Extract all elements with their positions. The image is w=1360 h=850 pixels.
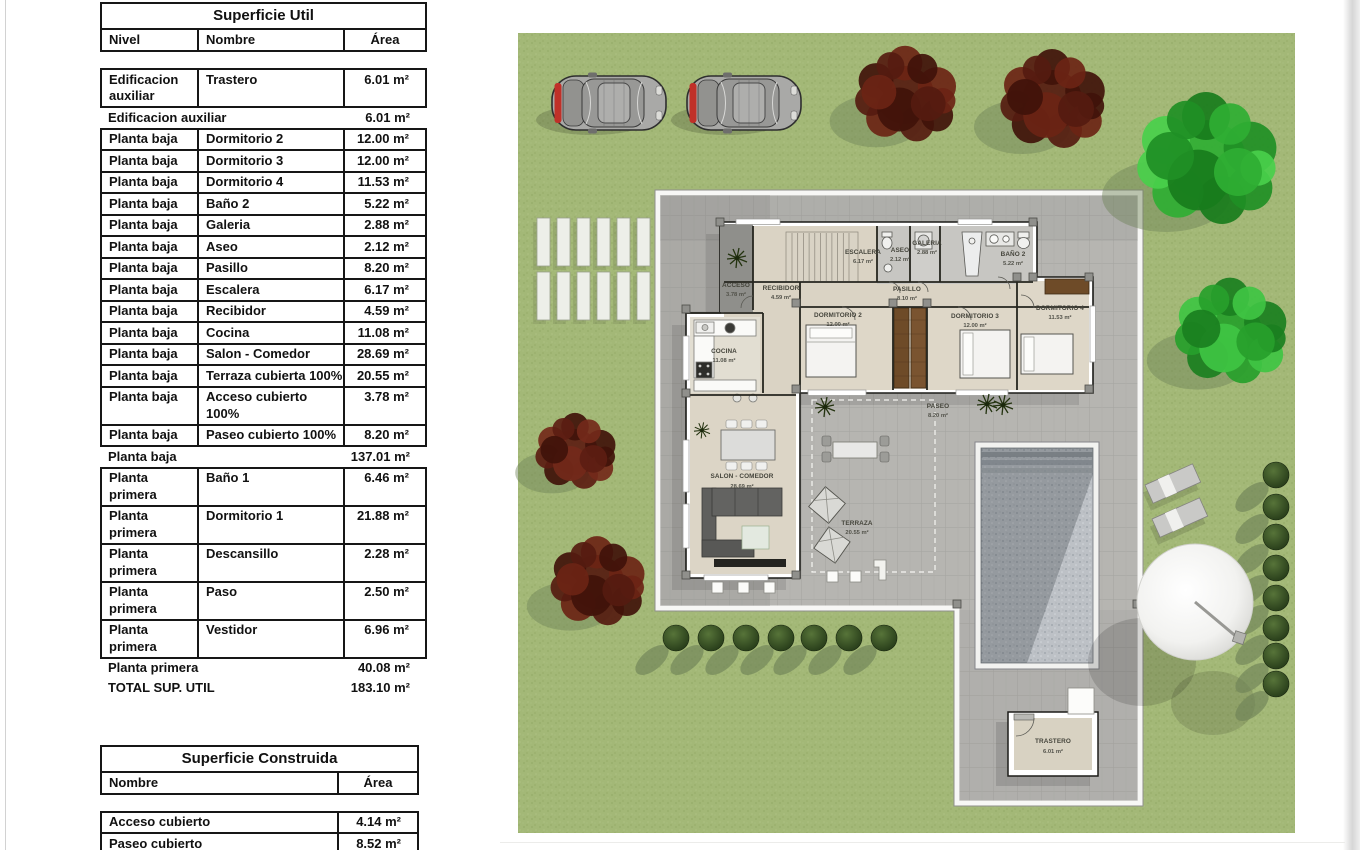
table-row: Planta bajaBaño 25.22 m² bbox=[101, 193, 426, 215]
superficie-construida-block: Superficie Construida Nombre Área Acceso… bbox=[100, 745, 417, 850]
table-row: Acceso cubierto4.14 m² bbox=[101, 812, 418, 834]
table-row: Edificacion auxiliar6.01 m² bbox=[101, 107, 426, 129]
table-row: TOTAL SUP. UTIL183.10 m² bbox=[101, 678, 426, 698]
table-cell: Planta baja bbox=[101, 344, 198, 366]
pergola-slat bbox=[557, 272, 570, 320]
svg-text:SALON - COMEDOR: SALON - COMEDOR bbox=[711, 473, 774, 480]
table-row: Planta primeraBaño 16.46 m² bbox=[101, 468, 426, 506]
svg-text:28.69 m²: 28.69 m² bbox=[730, 483, 753, 490]
superficie-util-table: Edificacion auxiliarTrastero6.01 m²Edifi… bbox=[100, 68, 427, 698]
svg-text:8.10 m²: 8.10 m² bbox=[897, 295, 917, 302]
pillar bbox=[1029, 273, 1037, 281]
table-cell: Planta baja bbox=[101, 365, 198, 387]
site-plan: ESCALERA6.17 m² ASEO2.12 m² GALERIA2.88 … bbox=[490, 0, 1360, 850]
pergola-slat bbox=[577, 272, 590, 320]
pillar bbox=[682, 389, 690, 397]
chair bbox=[880, 436, 889, 446]
table-cell: 2.28 m² bbox=[344, 544, 426, 582]
site-plan-svg: ESCALERA6.17 m² ASEO2.12 m² GALERIA2.88 … bbox=[490, 0, 1360, 850]
pillar bbox=[1029, 218, 1037, 226]
table-cell: 4.59 m² bbox=[344, 301, 426, 323]
table-title-row: Superficie Construida bbox=[101, 746, 418, 772]
table-row: Planta primeraDormitorio 121.88 m² bbox=[101, 506, 426, 544]
svg-text:6.01 m²: 6.01 m² bbox=[1043, 748, 1063, 755]
chair bbox=[822, 436, 831, 446]
table-cell: 11.08 m² bbox=[344, 322, 426, 344]
svg-text:5.22 m²: 5.22 m² bbox=[1003, 260, 1023, 267]
svg-text:ESCALERA: ESCALERA bbox=[845, 249, 881, 256]
pillar bbox=[716, 218, 724, 226]
svg-text:ASEO: ASEO bbox=[891, 247, 910, 254]
terrace-table bbox=[833, 442, 877, 458]
table-row: Planta bajaTerraza cubierta 100%20.55 m² bbox=[101, 365, 426, 387]
table-row: Planta bajaSalon - Comedor28.69 m² bbox=[101, 344, 426, 366]
col-header-nombre: Nombre bbox=[101, 772, 338, 794]
table-title-row: Superficie Util bbox=[101, 3, 426, 29]
table-row: Planta bajaPasillo8.20 m² bbox=[101, 258, 426, 280]
pillar bbox=[682, 571, 690, 579]
svg-text:RECIBIDOR: RECIBIDOR bbox=[763, 285, 800, 292]
table-row: Planta bajaEscalera6.17 m² bbox=[101, 279, 426, 301]
left-rule bbox=[5, 0, 6, 850]
pillar bbox=[923, 299, 931, 307]
table-cell: Recibidor bbox=[198, 301, 344, 323]
pergola-slat bbox=[557, 218, 570, 266]
table-cell: Planta primera bbox=[101, 468, 198, 506]
floorplan-sheet: Superficie Util Nivel Nombre Área Edific… bbox=[0, 0, 1360, 850]
table-head-row: Nombre Área bbox=[101, 772, 418, 794]
table-cell: Paso bbox=[198, 582, 344, 620]
superficie-construida-table: Acceso cubierto4.14 m²Paseo cubierto8.52… bbox=[100, 811, 419, 850]
pool bbox=[975, 442, 1099, 669]
svg-text:4.59 m²: 4.59 m² bbox=[771, 294, 791, 301]
svg-text:12.00 m²: 12.00 m² bbox=[826, 321, 849, 328]
table-cell: Edificacion auxiliar bbox=[101, 107, 344, 129]
table-row: Planta primera40.08 m² bbox=[101, 658, 426, 679]
dining-table bbox=[721, 430, 775, 460]
table-cell: 3.78 m² bbox=[344, 387, 426, 425]
table-cell: Planta baja bbox=[101, 301, 198, 323]
table-cell: Escalera bbox=[198, 279, 344, 301]
svg-text:DORMITORIO 3: DORMITORIO 3 bbox=[951, 313, 999, 320]
table-row: Planta bajaPaseo cubierto 100%8.20 m² bbox=[101, 425, 426, 447]
table-cell: Planta primera bbox=[101, 506, 198, 544]
table-row: Planta bajaDormitorio 312.00 m² bbox=[101, 150, 426, 172]
table-cell: 8.20 m² bbox=[344, 258, 426, 280]
col-header-area: Área bbox=[338, 772, 418, 794]
pillar bbox=[1013, 273, 1021, 281]
table-cell: Acceso cubierto 100% bbox=[198, 387, 344, 425]
pergola-slat bbox=[637, 218, 650, 266]
table-row: Paseo cubierto8.52 m² bbox=[101, 833, 418, 850]
svg-text:20.55 m²: 20.55 m² bbox=[845, 529, 868, 536]
table-cell: 11.53 m² bbox=[344, 172, 426, 194]
superficie-construida-header: Superficie Construida Nombre Área bbox=[100, 745, 419, 795]
table-cell: 21.88 m² bbox=[344, 506, 426, 544]
table-cell: Planta baja bbox=[101, 215, 198, 237]
table-head-row: Nivel Nombre Área bbox=[101, 29, 426, 51]
chair bbox=[756, 462, 767, 470]
svg-text:DORMITORIO 2: DORMITORIO 2 bbox=[814, 312, 862, 319]
pillar bbox=[792, 299, 800, 307]
table-cell: 6.96 m² bbox=[344, 620, 426, 658]
table-cell: Pasillo bbox=[198, 258, 344, 280]
table-cell: Planta baja bbox=[101, 322, 198, 344]
table-cell: 5.22 m² bbox=[344, 193, 426, 215]
trastero-porch bbox=[1068, 688, 1094, 714]
table-cell: Dormitorio 1 bbox=[198, 506, 344, 544]
table-row: Planta bajaDormitorio 212.00 m² bbox=[101, 129, 426, 151]
pillar bbox=[1085, 385, 1093, 393]
svg-text:TERRAZA: TERRAZA bbox=[841, 520, 873, 527]
svg-text:PASILLO: PASILLO bbox=[893, 286, 921, 293]
chair bbox=[756, 420, 767, 428]
svg-text:11.53 m²: 11.53 m² bbox=[1049, 314, 1072, 321]
chair bbox=[741, 462, 752, 470]
table-cell: Planta baja bbox=[101, 279, 198, 301]
tv-unit bbox=[714, 559, 786, 567]
table-cell: Paseo cubierto bbox=[101, 833, 338, 850]
table-cell: 2.12 m² bbox=[344, 236, 426, 258]
table-row: Planta bajaGaleria2.88 m² bbox=[101, 215, 426, 237]
svg-text:2.88 m²: 2.88 m² bbox=[917, 249, 937, 256]
table-cell: Planta baja bbox=[101, 446, 344, 468]
svg-text:ACCESO: ACCESO bbox=[722, 282, 750, 289]
table-row: Planta primeraDescansillo2.28 m² bbox=[101, 544, 426, 582]
svg-text:GALERIA: GALERIA bbox=[912, 240, 942, 247]
svg-text:BAÑO 2: BAÑO 2 bbox=[1001, 249, 1026, 258]
area-tables-panel: Superficie Util Nivel Nombre Área Edific… bbox=[100, 2, 425, 850]
table-cell: 183.10 m² bbox=[344, 678, 426, 698]
table-cell: Vestidor bbox=[198, 620, 344, 658]
col-header-nivel: Nivel bbox=[101, 29, 198, 51]
pergola-slat bbox=[577, 218, 590, 266]
pergola-slat bbox=[537, 218, 550, 266]
table-row: Planta bajaCocina11.08 m² bbox=[101, 322, 426, 344]
table-cell: Dormitorio 3 bbox=[198, 150, 344, 172]
svg-text:2.12 m²: 2.12 m² bbox=[890, 256, 910, 263]
table-cell: 6.46 m² bbox=[344, 468, 426, 506]
pillar bbox=[1085, 273, 1093, 281]
table-cell: 4.14 m² bbox=[338, 812, 418, 834]
table-cell: Planta baja bbox=[101, 172, 198, 194]
chair bbox=[726, 462, 737, 470]
table-cell: 2.88 m² bbox=[344, 215, 426, 237]
table-cell: 12.00 m² bbox=[344, 150, 426, 172]
table-cell: 8.52 m² bbox=[338, 833, 418, 850]
table-cell: Galeria bbox=[198, 215, 344, 237]
table-cell: Salon - Comedor bbox=[198, 344, 344, 366]
table-row: Planta bajaRecibidor4.59 m² bbox=[101, 301, 426, 323]
table-cell: Planta baja bbox=[101, 258, 198, 280]
table-cell: 6.17 m² bbox=[344, 279, 426, 301]
table-cell: Planta baja bbox=[101, 193, 198, 215]
rug bbox=[742, 526, 769, 549]
table-cell: Trastero bbox=[198, 69, 344, 107]
chair bbox=[822, 452, 831, 462]
table-cell: Descansillo bbox=[198, 544, 344, 582]
table-cell: TOTAL SUP. UTIL bbox=[101, 678, 344, 698]
table-cell: 8.20 m² bbox=[344, 425, 426, 447]
table-cell: 28.69 m² bbox=[344, 344, 426, 366]
table-cell: 20.55 m² bbox=[344, 365, 426, 387]
table-row: Planta baja137.01 m² bbox=[101, 446, 426, 468]
table-cell: Baño 2 bbox=[198, 193, 344, 215]
pergola-slat bbox=[637, 272, 650, 320]
chair bbox=[880, 452, 889, 462]
table-cell: Acceso cubierto bbox=[101, 812, 338, 834]
svg-text:8.20 m²: 8.20 m² bbox=[928, 412, 948, 419]
table-cell: Planta primera bbox=[101, 620, 198, 658]
wardrobe bbox=[1045, 279, 1089, 294]
table-cell: Dormitorio 2 bbox=[198, 129, 344, 151]
staircase bbox=[786, 232, 858, 282]
svg-text:COCINA: COCINA bbox=[711, 348, 737, 355]
chair bbox=[726, 420, 737, 428]
col-header-nombre: Nombre bbox=[198, 29, 344, 51]
table-cell: 2.50 m² bbox=[344, 582, 426, 620]
table-row: Edificacion auxiliarTrastero6.01 m² bbox=[101, 69, 426, 107]
svg-text:6.17 m²: 6.17 m² bbox=[853, 258, 873, 265]
table-cell: Planta baja bbox=[101, 129, 198, 151]
table-row: Planta primeraVestidor6.96 m² bbox=[101, 620, 426, 658]
table-cell: Planta baja bbox=[101, 387, 198, 425]
superficie-util-header: Superficie Util Nivel Nombre Área bbox=[100, 2, 427, 52]
chair bbox=[741, 420, 752, 428]
table-row: Planta primeraPaso2.50 m² bbox=[101, 582, 426, 620]
table-cell: Cocina bbox=[198, 322, 344, 344]
parasol bbox=[1137, 544, 1253, 660]
svg-text:TRASTERO: TRASTERO bbox=[1035, 738, 1071, 745]
svg-text:PASEO: PASEO bbox=[927, 403, 949, 410]
table-row: Planta bajaAseo2.12 m² bbox=[101, 236, 426, 258]
table-cell: Aseo bbox=[198, 236, 344, 258]
svg-text:11.08 m²: 11.08 m² bbox=[713, 357, 736, 364]
table-title: Superficie Construida bbox=[101, 746, 418, 772]
pergola-slat bbox=[617, 272, 630, 320]
table-cell: 6.01 m² bbox=[344, 69, 426, 107]
pillar bbox=[792, 385, 800, 393]
table-cell: Planta primera bbox=[101, 544, 198, 582]
svg-text:3.78 m²: 3.78 m² bbox=[726, 291, 746, 298]
pergola-slat bbox=[617, 218, 630, 266]
pillar bbox=[953, 600, 961, 608]
table-cell: 6.01 m² bbox=[344, 107, 426, 129]
table-cell: Dormitorio 4 bbox=[198, 172, 344, 194]
table-cell: Baño 1 bbox=[198, 468, 344, 506]
pillar bbox=[889, 299, 897, 307]
pergola-slat bbox=[537, 272, 550, 320]
table-row: Planta bajaDormitorio 411.53 m² bbox=[101, 172, 426, 194]
pillar bbox=[682, 305, 690, 313]
table-row: Planta bajaAcceso cubierto 100%3.78 m² bbox=[101, 387, 426, 425]
table-cell: Paseo cubierto 100% bbox=[198, 425, 344, 447]
svg-text:12.00 m²: 12.00 m² bbox=[963, 322, 986, 329]
table-cell: 137.01 m² bbox=[344, 446, 426, 468]
table-cell: Planta baja bbox=[101, 425, 198, 447]
table-cell: Planta baja bbox=[101, 236, 198, 258]
pergola-slat bbox=[597, 272, 610, 320]
col-header-area: Área bbox=[344, 29, 426, 51]
table-cell: 12.00 m² bbox=[344, 129, 426, 151]
table-cell: Edificacion auxiliar bbox=[101, 69, 198, 107]
sofa bbox=[712, 488, 782, 516]
table-cell: Planta primera bbox=[101, 582, 198, 620]
table-title: Superficie Util bbox=[101, 3, 426, 29]
table-cell: Terraza cubierta 100% bbox=[198, 365, 344, 387]
table-cell: Planta baja bbox=[101, 150, 198, 172]
table-cell: Planta primera bbox=[101, 658, 344, 679]
table-cell: 40.08 m² bbox=[344, 658, 426, 679]
pillar bbox=[792, 571, 800, 579]
svg-text:DORMITORIO 4: DORMITORIO 4 bbox=[1036, 305, 1084, 312]
pergola-slat bbox=[597, 218, 610, 266]
